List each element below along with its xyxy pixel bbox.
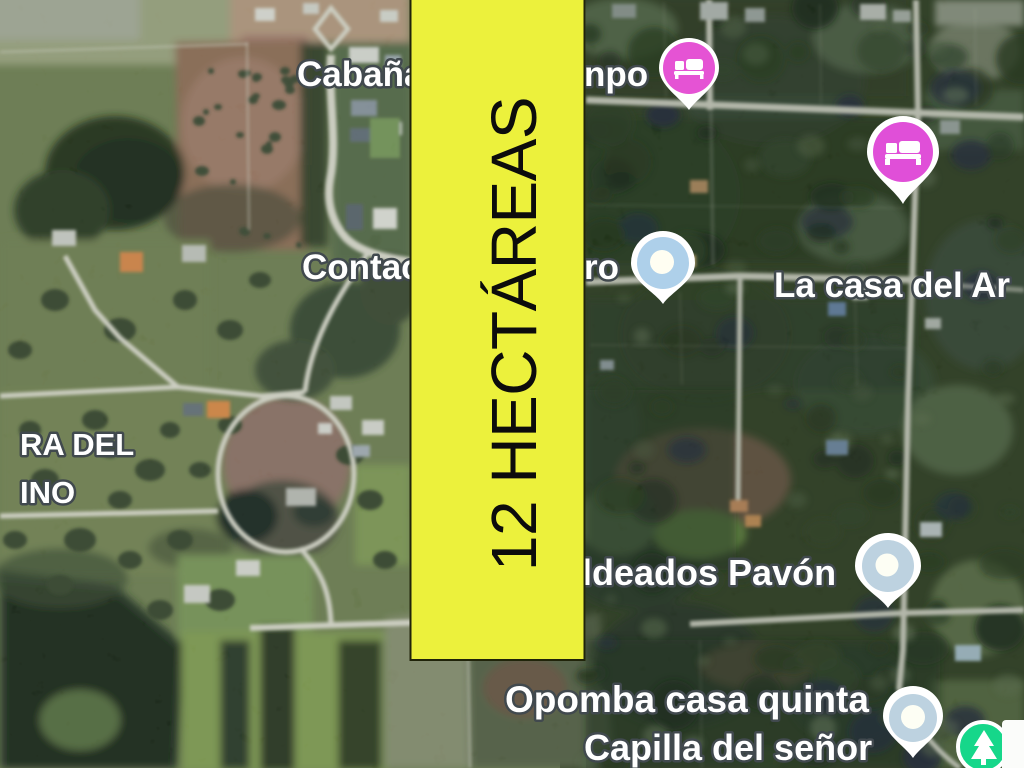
svg-text:Cabaña: Cabaña xyxy=(297,55,424,94)
svg-text:Contac: Contac xyxy=(302,248,421,287)
svg-text:12 HECTÁREAS: 12 HECTÁREAS xyxy=(478,97,550,571)
svg-text:INO: INO xyxy=(20,475,75,510)
svg-text:La casa del Ar: La casa del Ar xyxy=(774,266,1010,305)
svg-text:ro: ro xyxy=(584,248,619,287)
svg-text:ldeados Pavón: ldeados Pavón xyxy=(582,552,836,593)
svg-text:Capilla del señor: Capilla del señor xyxy=(584,727,872,768)
svg-text:npo: npo xyxy=(584,55,648,94)
svg-text:Opomba casa quinta: Opomba casa quinta xyxy=(505,679,869,720)
svg-text:RA DEL: RA DEL xyxy=(20,427,134,462)
